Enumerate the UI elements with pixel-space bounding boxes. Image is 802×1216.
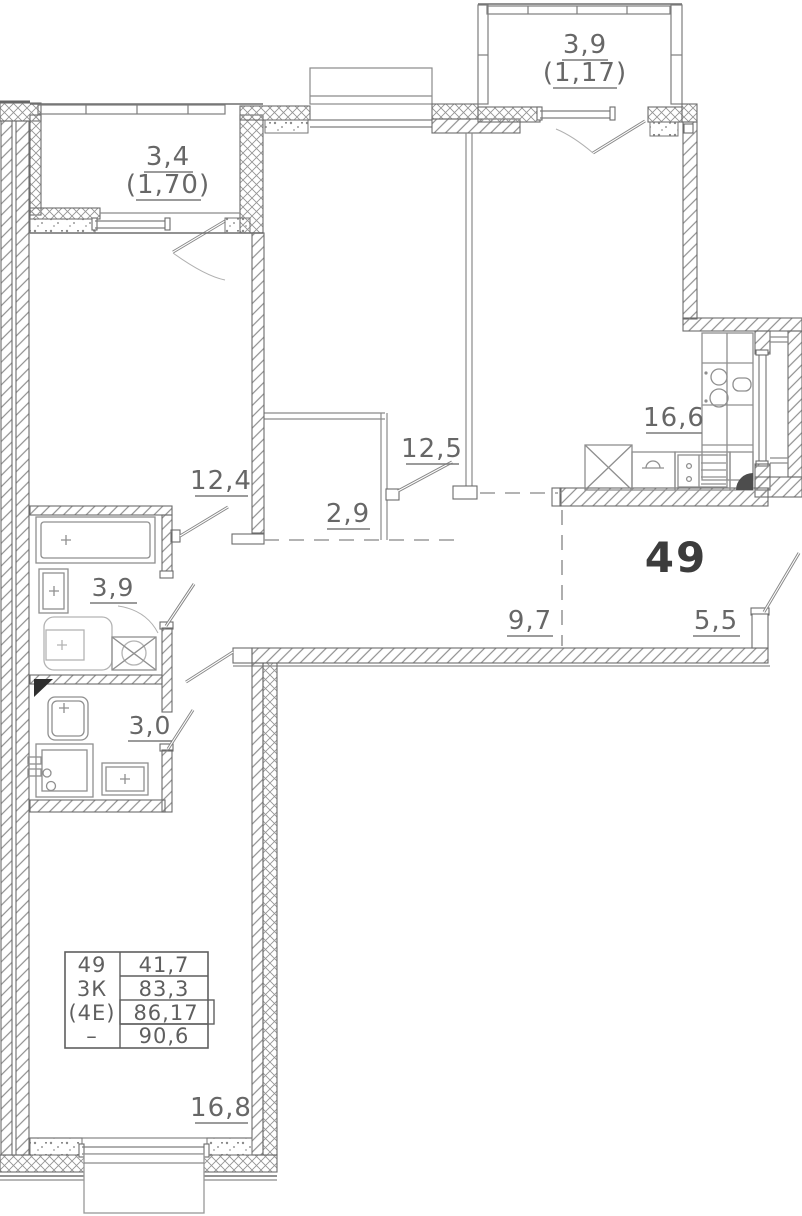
wall-segment — [265, 120, 308, 133]
bay-canopy — [310, 68, 432, 104]
wall-segment — [683, 318, 802, 331]
info-table-cell: 49 — [78, 953, 107, 977]
wall-segment — [30, 506, 172, 515]
stove-burner — [711, 369, 727, 385]
corner-cabinet-arc — [736, 473, 753, 490]
label-wc: 3,0 — [129, 711, 172, 740]
wall-segment — [30, 800, 165, 812]
info-table-cell: 83,3 — [139, 977, 190, 1001]
wall-segment — [478, 107, 540, 122]
wall-segment — [252, 663, 263, 1155]
wall-segment — [682, 104, 697, 122]
wc-toilet-inner — [52, 701, 84, 736]
floor-plan-drawing: 3,4 (1,70) 3,9 (1,17) 12,4 12,5 2,9 16,6… — [0, 0, 802, 1216]
kitchen-sink — [733, 378, 751, 391]
wc-door-leaf-core — [168, 710, 193, 749]
window-frame — [38, 105, 225, 114]
wall-segment — [30, 1138, 82, 1155]
floor-plan-page: 3,4 (1,70) 3,9 (1,17) 12,4 12,5 2,9 16,6… — [0, 0, 802, 1216]
label-room-12-5: 12,5 — [401, 434, 463, 464]
hood-symbol — [642, 461, 664, 468]
door-jamb — [386, 489, 399, 500]
drawer-knob — [687, 477, 692, 482]
window-jamb — [756, 350, 768, 355]
faucet — [28, 757, 41, 764]
faucet-handle — [43, 769, 51, 777]
washbasin-mark — [49, 586, 59, 596]
balcony-door-leaf-core — [173, 221, 225, 252]
wall-segment — [162, 515, 172, 573]
wall-segment — [225, 218, 250, 233]
window-jamb — [79, 1144, 84, 1157]
wall-segment — [263, 663, 277, 1155]
vent-box — [684, 124, 693, 133]
entry-pier — [752, 614, 768, 648]
wall-end-cap — [232, 534, 264, 544]
bathtub-inner — [41, 522, 150, 558]
wc-washbasin-mark — [120, 774, 130, 784]
shower-tray-inner — [42, 750, 87, 791]
wall-segment — [240, 106, 310, 120]
window-jamb — [610, 107, 615, 120]
bathroom-fixtures — [28, 517, 156, 797]
wall-segment — [648, 107, 682, 122]
info-table-cell: 86,17 — [133, 1001, 198, 1025]
door-swing-arc — [118, 606, 158, 633]
room-12-4-door-leaf-core — [180, 507, 228, 536]
right-walls — [682, 104, 802, 497]
wall-segment — [432, 104, 478, 119]
window-frame — [487, 6, 670, 14]
info-table-cell: 90,6 — [139, 1024, 190, 1048]
wall-segment — [30, 208, 100, 219]
faucet — [28, 769, 41, 776]
wall-segment — [683, 122, 697, 319]
wall-segment — [162, 628, 172, 712]
wall-pier — [453, 486, 477, 499]
info-table-cell: (4Е) — [68, 1001, 115, 1025]
label-hallway: 9,7 — [508, 606, 552, 636]
hob-cabinet — [632, 452, 675, 490]
wc-toilet-mark — [59, 703, 69, 713]
wall-end-cap — [233, 648, 252, 663]
bathroom-door-leaf-core — [166, 584, 194, 626]
apartment-number: 49 — [645, 533, 707, 582]
interior-partitions — [171, 133, 477, 682]
label-kitchen-living: 16,6 — [643, 403, 705, 433]
info-table-cell: 41,7 — [139, 953, 190, 977]
shower-drain — [47, 782, 56, 791]
wall-segment — [16, 121, 29, 1155]
label-balcony-tr-area: 3,9 — [563, 30, 607, 60]
wall-segment — [788, 331, 802, 477]
window-jamb — [165, 218, 170, 230]
info-table-cell: – — [86, 1024, 98, 1048]
fridge-cross — [585, 445, 632, 490]
toilet-mark — [57, 640, 67, 650]
room-12-5-door-leaf-core — [398, 462, 452, 491]
wall-segment — [650, 122, 678, 136]
bathtub — [36, 517, 155, 563]
wall-segment — [30, 115, 41, 215]
wall-end-cap — [160, 571, 173, 578]
stove-burner — [710, 389, 728, 407]
passage-door-leaf-core — [186, 652, 233, 682]
window-jamb — [204, 1144, 209, 1157]
bathtub-mark — [61, 535, 71, 545]
wall-segment — [252, 648, 768, 663]
entry-door-leaf-core — [764, 553, 799, 612]
door-swing-arc — [556, 129, 593, 153]
drawer-knob — [687, 464, 692, 469]
label-room-12-4: 12,4 — [190, 466, 252, 496]
label-balcony-tr-reduced: (1,17) — [543, 58, 627, 88]
label-bathroom: 3,9 — [92, 573, 135, 602]
label-wardrobe: 2,9 — [326, 499, 370, 529]
wall-segment — [560, 488, 768, 506]
label-bedroom: 16,8 — [190, 1093, 252, 1123]
label-balcony-tl-area: 3,4 — [146, 142, 190, 172]
label-balcony-tl-reduced: (1,70) — [126, 170, 210, 200]
info-table-cell: 3К — [77, 977, 107, 1001]
label-entry: 5,5 — [694, 606, 738, 636]
wall-segment — [1, 121, 12, 1155]
info-table: 49 3К (4Е) – 41,7 83,3 86,17 90,6 — [65, 952, 214, 1048]
hallway-walls — [233, 488, 799, 1155]
wall-segment — [30, 219, 95, 233]
wc-toilet — [48, 697, 88, 740]
wall-segment — [240, 115, 263, 233]
wall-segment — [207, 1138, 252, 1155]
balcony-door-leaf-core — [593, 121, 645, 153]
toilet — [44, 617, 112, 670]
wall-segment — [252, 233, 264, 533]
door-swing-arc — [173, 253, 225, 280]
stove-knob — [704, 371, 707, 374]
